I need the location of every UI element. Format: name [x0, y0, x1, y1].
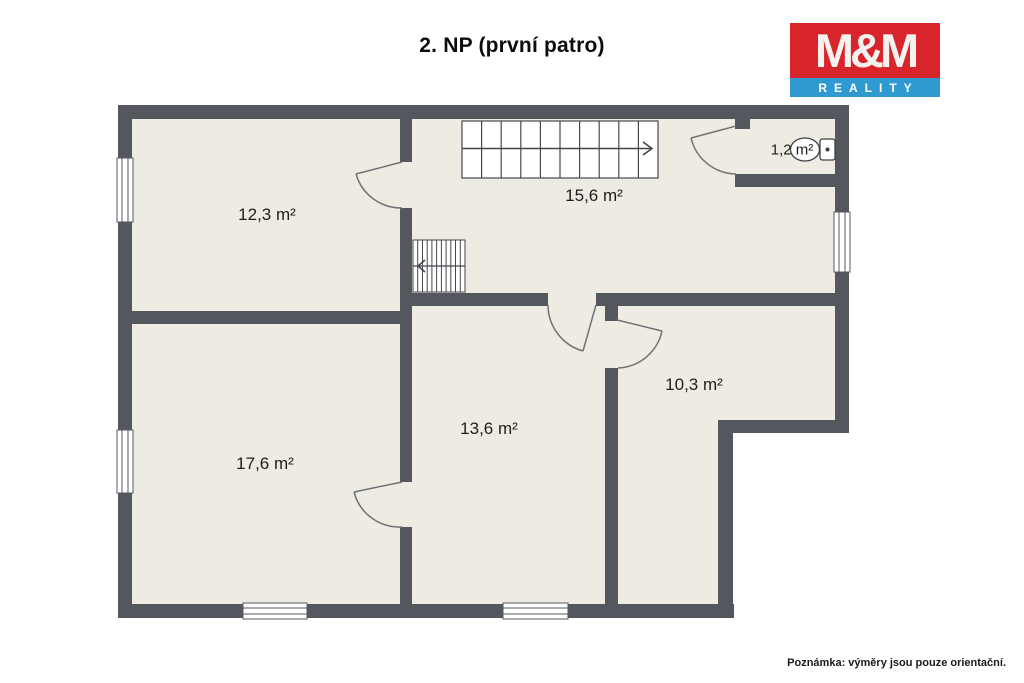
- window-bottom-center: [503, 603, 568, 619]
- wall-stub-right-room-door: [605, 305, 618, 321]
- floor-plan-drawing: [0, 0, 1024, 683]
- wall-hall-center-room: [412, 293, 548, 306]
- page-title: 2. NP (první patro): [419, 34, 604, 58]
- wall-step-vertical: [718, 420, 733, 618]
- mm-reality-logo: M&M REALITY: [790, 23, 940, 97]
- room-label-17-6: 17,6 m²: [236, 454, 294, 474]
- staircase-main: [462, 121, 658, 178]
- wall-wc-bottom: [735, 174, 849, 187]
- wall-hall-right-room: [596, 293, 835, 306]
- wall-stub-wc-door: [735, 119, 750, 129]
- wall-top: [118, 105, 849, 119]
- room-label-15-6: 15,6 m²: [565, 186, 623, 206]
- room-label-13-6: 13,6 m²: [460, 419, 518, 439]
- wall-spine-upper: [400, 119, 412, 162]
- floor-plan-page: 2. NP (první patro) 12,3 m² 15,6 m² 1,2 …: [0, 0, 1024, 683]
- wall-spine-middle: [400, 208, 412, 482]
- window-bottom-left: [243, 603, 307, 619]
- wall-spine-lower: [400, 527, 412, 604]
- staircase-upper: [413, 240, 465, 292]
- room-label-12-3: 12,3 m²: [238, 205, 296, 225]
- logo-reality-text: REALITY: [790, 78, 940, 97]
- wall-divider-left-rooms: [132, 311, 400, 324]
- window-right: [834, 212, 850, 272]
- room-label-10-3: 10,3 m²: [665, 375, 723, 395]
- window-left-upper: [117, 158, 133, 222]
- window-left-lower: [117, 430, 133, 493]
- wall-divider-center-right: [605, 368, 618, 604]
- wall-bottom: [118, 604, 734, 618]
- logo-mm-text: M&M: [790, 23, 940, 78]
- wall-step-horizontal: [718, 420, 849, 433]
- footnote: Poznámka: výměry jsou pouze orientační.: [787, 657, 1006, 669]
- room-label-1-2: 1,2 m²: [771, 142, 814, 159]
